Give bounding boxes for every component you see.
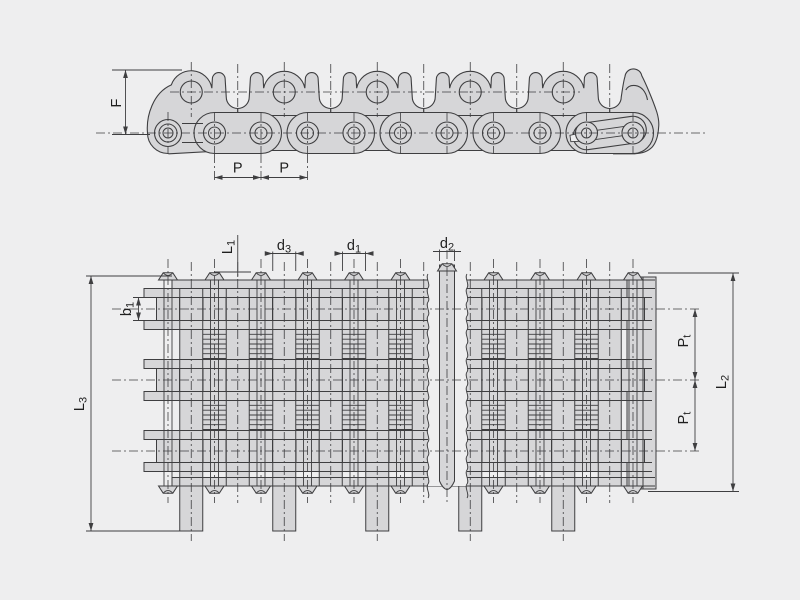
- dim-label-l1-sub: 1: [226, 240, 238, 246]
- dimension-arrow: [335, 251, 343, 256]
- dim-label-d3: d3: [277, 238, 291, 256]
- dimension-arrow: [89, 276, 94, 284]
- dim-label-d2: d2: [440, 236, 454, 254]
- dim-label-pt-upper: Pt: [676, 335, 694, 348]
- extended-sleeve: [273, 289, 296, 532]
- extended-sleeve: [552, 289, 575, 532]
- dim-label-pt-lower: Pt: [676, 412, 694, 425]
- dim-label-d2-sub: 2: [448, 242, 454, 254]
- dim-label-l3-main: L: [72, 403, 88, 411]
- dim-label-b1-sub: 1: [125, 302, 137, 308]
- extended-sleeve: [180, 289, 203, 532]
- dim-label-d1-sub: 1: [355, 244, 361, 256]
- link-plate-bar: [144, 463, 652, 472]
- dimension-arrow: [366, 251, 374, 256]
- dimension-arrow: [265, 251, 273, 256]
- dim-label-l3-sub: 3: [78, 397, 90, 403]
- dim-label-pt-upper-main: P: [676, 338, 692, 348]
- dimension-arrow: [215, 175, 223, 180]
- dimension-arrow: [253, 175, 261, 180]
- dim-label-d1: d1: [347, 238, 361, 256]
- dim-label-p-left: P: [233, 161, 243, 177]
- dim-label-d1-main: d: [347, 238, 355, 254]
- link-plate-bar: [144, 321, 652, 330]
- link-plate-bar: [144, 289, 652, 298]
- dimension-arrow: [136, 313, 141, 321]
- link-plate-bar: [144, 392, 652, 401]
- dimension-arrow: [123, 70, 128, 78]
- dimension-arrow: [261, 175, 269, 180]
- dim-label-d3-sub: 3: [285, 244, 291, 256]
- dim-label-pt-upper-sub: t: [682, 335, 694, 338]
- dim-label-pt-lower-main: P: [676, 415, 692, 425]
- dim-label-b1-main: b: [119, 308, 135, 316]
- dimension-arrow: [123, 127, 128, 135]
- dimension-arrow: [693, 443, 698, 451]
- dimension-arrow: [693, 309, 698, 317]
- dimension-arrow: [136, 298, 141, 306]
- extended-sleeve: [366, 289, 389, 532]
- dim-label-d2-main: d: [440, 236, 448, 252]
- dim-label-l2: L2: [714, 375, 732, 389]
- bottom-view-plan-section: [86, 235, 739, 541]
- top-view-side-elevation: [96, 62, 706, 183]
- dim-label-l2-sub: 2: [720, 375, 732, 381]
- dimension-arrow: [731, 484, 736, 492]
- dim-label-pt-lower-sub: t: [682, 412, 694, 415]
- chain-drawing-svg: F P P L1 d3 d1 d2 b1 L3 Pt Pt L2: [0, 0, 800, 600]
- link-plate-bar: [144, 360, 652, 369]
- dim-label-f: F: [109, 98, 125, 107]
- dimension-arrow: [296, 251, 304, 256]
- dim-label-d3-main: d: [277, 238, 285, 254]
- dimension-arrow: [300, 175, 308, 180]
- dim-label-l3: L3: [72, 397, 90, 411]
- dimension-arrow: [89, 523, 94, 531]
- dim-label-l1: L1: [220, 240, 238, 254]
- dim-label-l1-main: L: [220, 246, 236, 254]
- dimension-arrow: [731, 273, 736, 281]
- dim-label-b1: b1: [119, 302, 137, 316]
- dim-label-p-right: P: [279, 161, 289, 177]
- technical-drawing-canvas: F P P L1 d3 d1 d2 b1 L3 Pt Pt L2: [0, 0, 800, 600]
- dimension-arrow: [693, 380, 698, 388]
- link-plate-bar: [144, 431, 652, 440]
- dim-label-l2-main: L: [714, 381, 730, 389]
- dimension-arrow: [693, 372, 698, 380]
